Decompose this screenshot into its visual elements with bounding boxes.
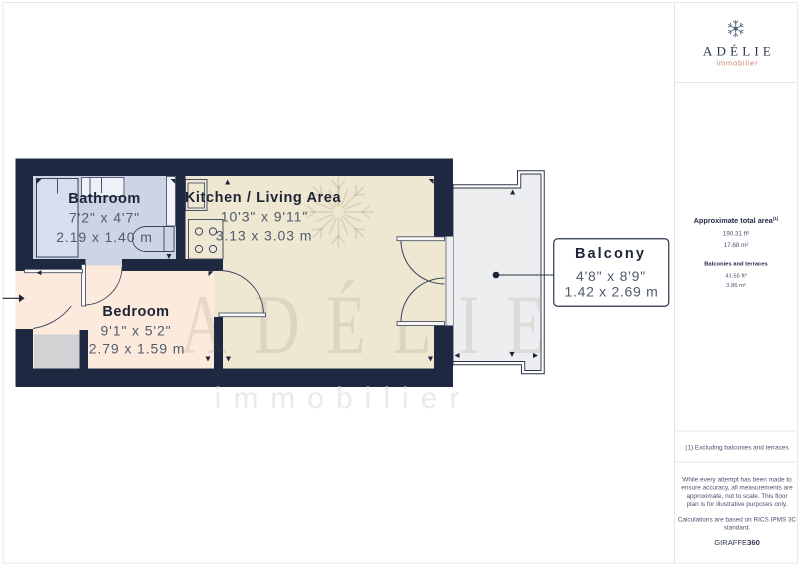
svg-text:17.68 m²: 17.68 m² xyxy=(724,242,749,249)
svg-text:41.55 ft²: 41.55 ft² xyxy=(725,274,746,280)
svg-text:2.19 x 1.40 m: 2.19 x 1.40 m xyxy=(56,229,153,245)
svg-text:plan is for illustrative purpo: plan is for illustrative purposes only. xyxy=(687,501,788,508)
svg-text:3.86 m²: 3.86 m² xyxy=(726,283,746,289)
svg-text:10'3" x 9'11": 10'3" x 9'11" xyxy=(221,209,308,225)
svg-text:immobilier: immobilier xyxy=(215,382,472,415)
svg-text:Kitchen / Living Area: Kitchen / Living Area xyxy=(185,190,342,206)
svg-text:ADÉLIE: ADÉLIE xyxy=(703,44,775,59)
svg-text:GIRAFFE360: GIRAFFE360 xyxy=(714,538,760,547)
svg-text:4'8" x 8'9": 4'8" x 8'9" xyxy=(576,268,646,284)
svg-text:immobilier: immobilier xyxy=(716,59,758,68)
svg-text:3.13 x 3.03 m: 3.13 x 3.03 m xyxy=(216,228,313,244)
svg-text:Bedroom: Bedroom xyxy=(102,304,169,320)
svg-text:ensure accuracy, all measureme: ensure accuracy, all measurements are xyxy=(681,485,793,492)
svg-text:approximate, not to scale. Thi: approximate, not to scale. This floor xyxy=(686,493,788,500)
svg-text:(1) Excluding balconies and te: (1) Excluding balconies and terraces xyxy=(685,445,788,452)
svg-text:standard.: standard. xyxy=(724,525,751,532)
svg-text:While every attempt has been m: While every attempt has been made to xyxy=(682,477,792,484)
svg-text:7'2" x 4'7": 7'2" x 4'7" xyxy=(69,210,140,226)
svg-text:Calculations are based on RICS: Calculations are based on RICS IPMS 3C xyxy=(678,517,797,524)
svg-text:Approximate total area(1): Approximate total area(1) xyxy=(694,216,779,225)
svg-text:190.31 ft²: 190.31 ft² xyxy=(723,231,750,238)
svg-text:2.79 x 1.59 m: 2.79 x 1.59 m xyxy=(89,341,186,357)
svg-text:Balcony: Balcony xyxy=(575,246,646,262)
svg-text:Balconies and terraces: Balconies and terraces xyxy=(704,261,767,267)
svg-text:Bathroom: Bathroom xyxy=(68,191,140,207)
svg-text:ADÉLIE: ADÉLIE xyxy=(180,278,572,372)
svg-text:9'1" x 5'2": 9'1" x 5'2" xyxy=(100,323,171,339)
svg-text:1.42 x 2.69 m: 1.42 x 2.69 m xyxy=(565,284,659,300)
